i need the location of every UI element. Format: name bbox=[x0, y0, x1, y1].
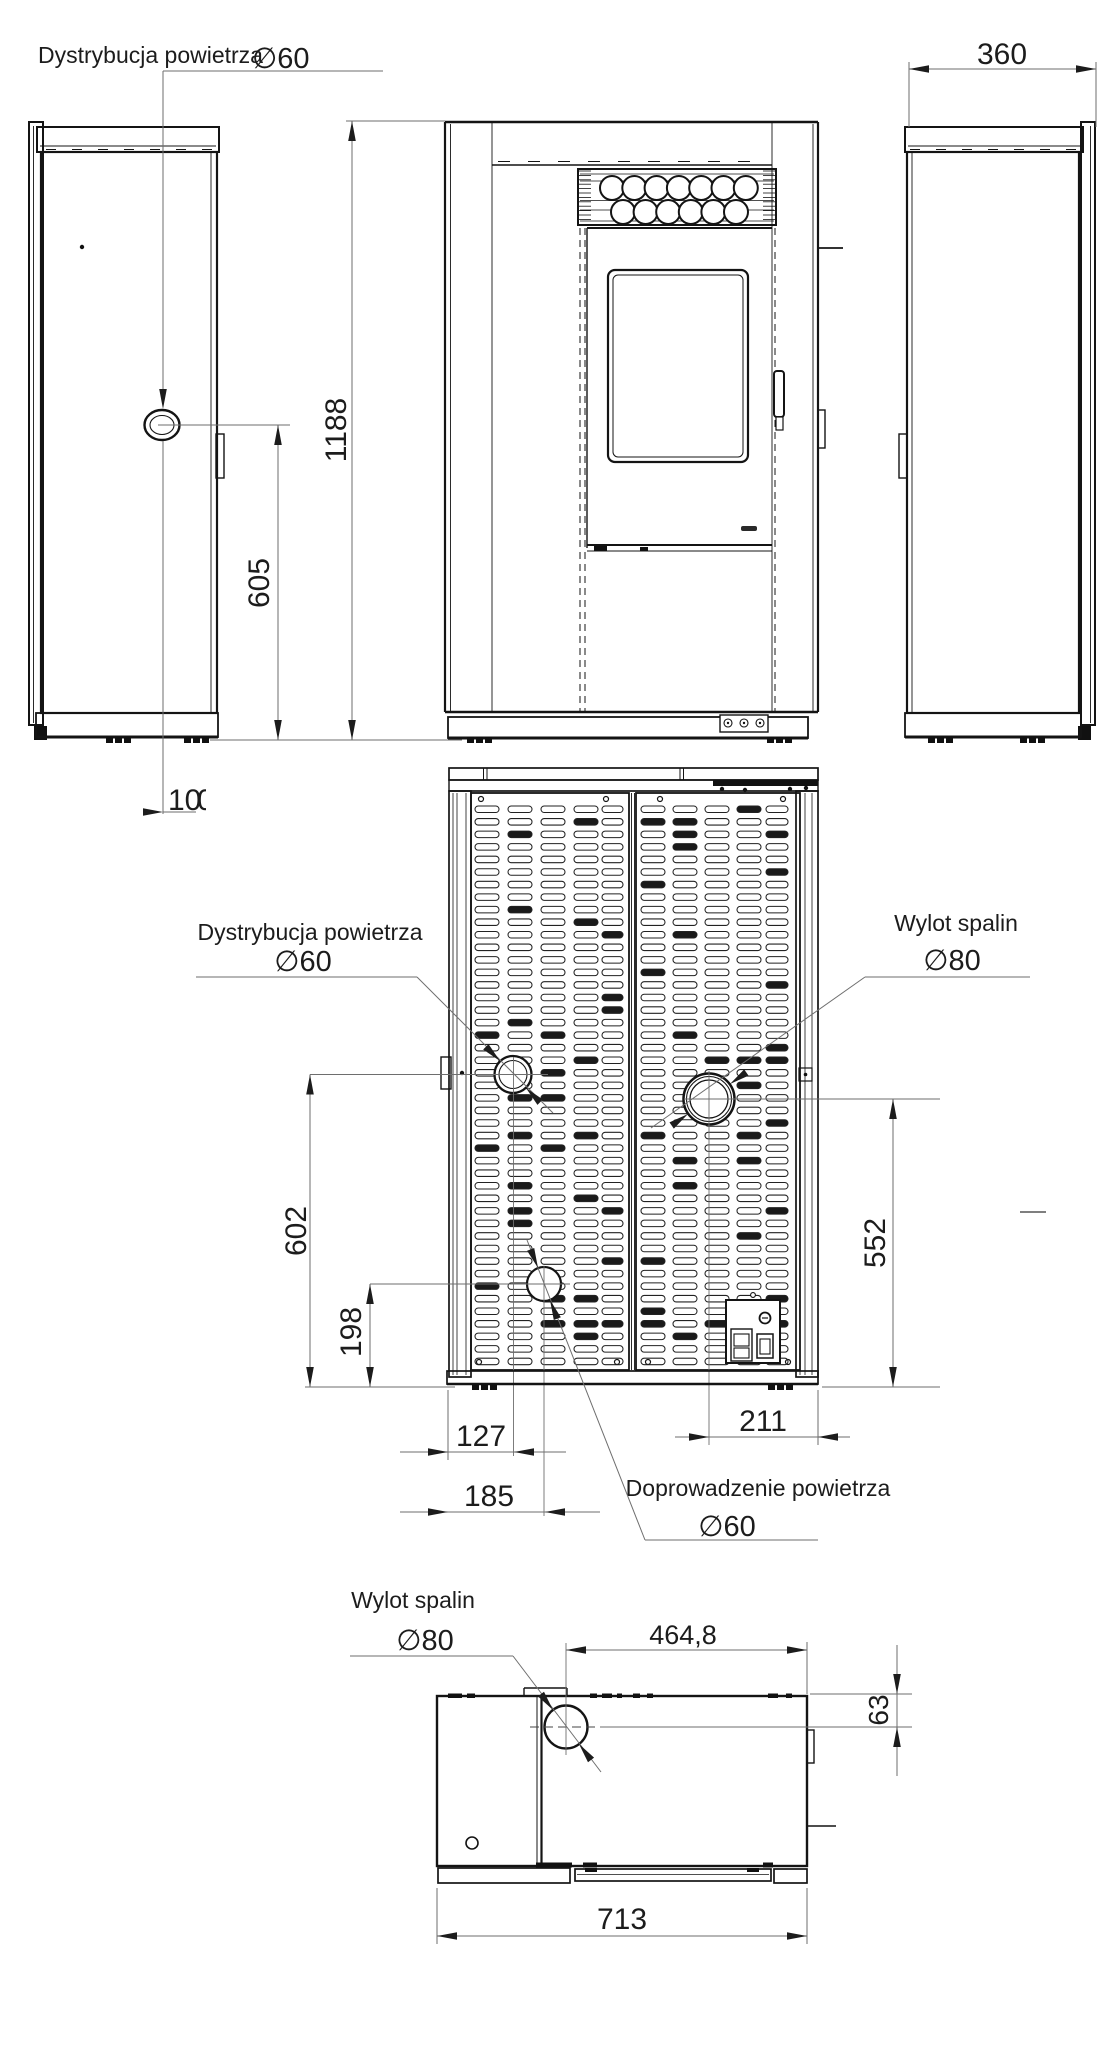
dim-flue-height: 552 bbox=[822, 1099, 940, 1387]
vent-slot bbox=[641, 1195, 665, 1202]
vent-slot bbox=[641, 1208, 665, 1215]
vent-slot bbox=[641, 1245, 665, 1252]
vent-slot bbox=[602, 1270, 623, 1277]
dimension-arrow bbox=[348, 720, 356, 740]
foot-mark bbox=[202, 737, 209, 743]
vent-slot bbox=[766, 1220, 788, 1227]
vent-slot bbox=[737, 944, 761, 951]
vent-slot bbox=[673, 1170, 697, 1177]
vent-slot bbox=[602, 1245, 623, 1252]
vent-slot bbox=[574, 1295, 598, 1302]
vent-slot bbox=[541, 1019, 565, 1026]
side-body bbox=[907, 152, 1079, 713]
vent-slot bbox=[766, 994, 788, 1001]
vent-slot bbox=[673, 944, 697, 951]
vent-slot bbox=[574, 1245, 598, 1252]
vent-slot bbox=[641, 1132, 665, 1139]
vent-slot bbox=[737, 969, 761, 976]
foot-mark bbox=[485, 737, 492, 743]
vent-slot bbox=[475, 1270, 499, 1277]
vent-slot bbox=[641, 1333, 665, 1340]
vent-slot bbox=[737, 856, 761, 863]
vent-slot bbox=[737, 831, 761, 838]
vent-slot bbox=[737, 819, 761, 826]
vent-slot bbox=[766, 1270, 788, 1277]
vent-slot bbox=[574, 994, 598, 1001]
vent-slot bbox=[602, 1208, 623, 1215]
side-view-left bbox=[29, 122, 290, 743]
vent-slot bbox=[541, 906, 565, 913]
vent-slot bbox=[541, 994, 565, 1001]
vent-slot bbox=[766, 1145, 788, 1152]
vent-slot bbox=[641, 969, 665, 976]
vent-slot bbox=[574, 969, 598, 976]
vent-slot bbox=[705, 894, 729, 901]
label-flue: Wylot spalin bbox=[351, 1587, 475, 1613]
vent-slot bbox=[641, 819, 665, 826]
vent-slot bbox=[475, 831, 499, 838]
vent-slot bbox=[475, 932, 499, 939]
vent-slot bbox=[508, 969, 532, 976]
dimension-arrow bbox=[428, 1448, 448, 1456]
vent-slot bbox=[475, 819, 499, 826]
vent-slot bbox=[673, 1220, 697, 1227]
grille-hole bbox=[622, 176, 646, 200]
dim-air-inlet-x-value: 185 bbox=[464, 1480, 514, 1513]
drawing-page: Dystrybucja powietrza∅601006051188360Dys… bbox=[0, 0, 1112, 2052]
door-latch bbox=[776, 417, 783, 430]
vent-slot bbox=[673, 982, 697, 989]
left-rail bbox=[449, 791, 471, 1377]
vent-slot bbox=[541, 831, 565, 838]
foot-mark bbox=[946, 737, 953, 743]
vent-slot bbox=[737, 1082, 761, 1089]
vent-slot bbox=[602, 1170, 623, 1177]
grille-hole bbox=[667, 176, 691, 200]
edge-tab bbox=[583, 1863, 597, 1868]
vent-slot bbox=[475, 1333, 499, 1340]
vent-slot bbox=[475, 1295, 499, 1302]
vent-slot bbox=[574, 1032, 598, 1039]
dim-overall-height-value: 1188 bbox=[320, 398, 353, 463]
vent-slot bbox=[673, 844, 697, 851]
power-inlet-box bbox=[726, 1293, 780, 1363]
stove-door bbox=[580, 228, 784, 712]
vent-slot bbox=[705, 982, 729, 989]
vent-slot bbox=[574, 1183, 598, 1190]
vent-slot bbox=[641, 1095, 665, 1102]
dim-air-inlet-height-value: 198 bbox=[335, 1307, 368, 1357]
vent-slot bbox=[475, 1032, 499, 1039]
vent-slot bbox=[737, 1107, 761, 1114]
vent-slot bbox=[766, 1170, 788, 1177]
vent-slot bbox=[602, 944, 623, 951]
dimension-arrow bbox=[366, 1284, 374, 1304]
vent-slot bbox=[673, 1208, 697, 1215]
screw bbox=[781, 797, 786, 802]
vent-slot bbox=[673, 1157, 697, 1164]
vent-slot bbox=[475, 994, 499, 1001]
vent-slot bbox=[766, 969, 788, 976]
vent-slot bbox=[673, 1183, 697, 1190]
vent-slot bbox=[641, 844, 665, 851]
vent-slot bbox=[602, 1057, 623, 1064]
vent-slot bbox=[508, 894, 532, 901]
grille-hole bbox=[712, 176, 736, 200]
vent-slot bbox=[574, 1019, 598, 1026]
label-air-distribution: Dystrybucja powietrza bbox=[198, 919, 423, 945]
vent-slot bbox=[508, 844, 532, 851]
vent-slot bbox=[673, 1321, 697, 1328]
vent-slot bbox=[574, 1358, 598, 1365]
vent-slot bbox=[574, 881, 598, 888]
vent-slot bbox=[766, 1245, 788, 1252]
vent-slot bbox=[641, 944, 665, 951]
dim-top-flue-y-value: 63 bbox=[863, 1694, 894, 1725]
vent-slot bbox=[737, 1283, 761, 1290]
dimension-arrow bbox=[366, 1367, 374, 1387]
vent-slot bbox=[475, 1220, 499, 1227]
dimension-arrow bbox=[689, 1433, 709, 1441]
vent-slot bbox=[508, 831, 532, 838]
vent-slot bbox=[766, 919, 788, 926]
vent-slot bbox=[737, 1019, 761, 1026]
dimension-arrow bbox=[274, 425, 282, 445]
vent-slot bbox=[508, 806, 532, 813]
edge-tab bbox=[647, 1694, 653, 1699]
vent-slot bbox=[641, 1321, 665, 1328]
dimension-arrow bbox=[787, 1932, 807, 1940]
top-outline bbox=[437, 1696, 807, 1866]
dim-depth-value: 360 bbox=[977, 38, 1027, 71]
dim-top-flue-x-value: 464,8 bbox=[649, 1620, 717, 1650]
vent-slot bbox=[475, 1157, 499, 1164]
vent-slot bbox=[737, 982, 761, 989]
vent-slot bbox=[541, 869, 565, 876]
label-air-distribution-diameter: ∅60 bbox=[252, 43, 310, 75]
vent-slot bbox=[574, 1208, 598, 1215]
vent-slot bbox=[508, 1095, 532, 1102]
vent-slot bbox=[602, 1082, 623, 1089]
rear-panel-edge bbox=[1081, 122, 1095, 725]
dimension-arrow bbox=[566, 1646, 586, 1654]
pellet-stove-technical-drawing: Dystrybucja powietrza∅601006051188360Dys… bbox=[0, 0, 1112, 2052]
vent-slot bbox=[475, 1208, 499, 1215]
grille-hole bbox=[611, 200, 635, 224]
vent-slot bbox=[705, 957, 729, 964]
vent-slot bbox=[602, 1044, 623, 1051]
vent-slot bbox=[602, 1032, 623, 1039]
vent-slot bbox=[541, 881, 565, 888]
vent-slot bbox=[475, 982, 499, 989]
vent-slot bbox=[673, 1283, 697, 1290]
vent-slot bbox=[574, 1283, 598, 1290]
vent-slot bbox=[705, 881, 729, 888]
dimension-arrow bbox=[274, 720, 282, 740]
vent-slot bbox=[602, 856, 623, 863]
rear-view bbox=[310, 768, 1046, 1516]
vent-slot bbox=[475, 1145, 499, 1152]
dim-top-flue-y: 63 bbox=[810, 1645, 912, 1776]
vent-slot bbox=[574, 1346, 598, 1353]
vent-slot bbox=[508, 1321, 532, 1328]
vent-slot bbox=[602, 831, 623, 838]
vent-slot bbox=[673, 1295, 697, 1302]
brand-mark bbox=[741, 526, 757, 531]
vent-slot bbox=[574, 1057, 598, 1064]
vent-slot bbox=[574, 944, 598, 951]
vent-slot bbox=[641, 1057, 665, 1064]
vent-slot bbox=[602, 969, 623, 976]
foot-mark bbox=[124, 737, 131, 743]
vent-slot bbox=[541, 1258, 565, 1265]
label-flue-diameter: ∅80 bbox=[396, 1625, 454, 1657]
vent-slot bbox=[541, 1007, 565, 1014]
vent-slot bbox=[641, 1233, 665, 1240]
label-air-distribution-diameter: ∅60 bbox=[274, 946, 332, 978]
vent-slot bbox=[508, 1258, 532, 1265]
vent-slot bbox=[475, 856, 499, 863]
vent-slot bbox=[541, 944, 565, 951]
vent-slot bbox=[574, 1145, 598, 1152]
foot-mark bbox=[106, 737, 113, 743]
vent-slot bbox=[673, 1032, 697, 1039]
vent-slot bbox=[602, 1183, 623, 1190]
foot-mark bbox=[193, 737, 200, 743]
vent-slot bbox=[475, 881, 499, 888]
vent-slot bbox=[705, 944, 729, 951]
vent-slot bbox=[541, 1120, 565, 1127]
foot-mark bbox=[476, 737, 483, 743]
foot-mark bbox=[1029, 737, 1036, 743]
vent-slot bbox=[705, 856, 729, 863]
vent-slot bbox=[541, 1082, 565, 1089]
base-plinth bbox=[774, 1869, 807, 1883]
vent-slot bbox=[673, 881, 697, 888]
screw bbox=[479, 797, 484, 802]
vent-slot bbox=[475, 1195, 499, 1202]
vent-slot bbox=[766, 806, 788, 813]
vent-slot bbox=[705, 844, 729, 851]
vent-slot bbox=[475, 1308, 499, 1315]
vent-slot bbox=[737, 1183, 761, 1190]
vent-slot bbox=[641, 1346, 665, 1353]
vent-slot bbox=[737, 1208, 761, 1215]
vent-slot bbox=[541, 1245, 565, 1252]
vent-slot bbox=[541, 919, 565, 926]
vent-slot bbox=[641, 957, 665, 964]
vent-slot bbox=[508, 1007, 532, 1014]
vent-slot bbox=[673, 1145, 697, 1152]
vent-slot bbox=[641, 1220, 665, 1227]
foot-mark bbox=[786, 1384, 793, 1390]
rect bbox=[594, 546, 607, 551]
vent-slot bbox=[737, 1120, 761, 1127]
vent-slot bbox=[641, 982, 665, 989]
vent-slot bbox=[508, 932, 532, 939]
foot-mark bbox=[115, 737, 122, 743]
vent-slot bbox=[766, 1283, 788, 1290]
vent-slot bbox=[673, 1358, 697, 1365]
vent-slot bbox=[541, 1233, 565, 1240]
vent-slot bbox=[574, 1270, 598, 1277]
dimension-arrow bbox=[159, 389, 167, 409]
vent-slot bbox=[574, 844, 598, 851]
vent-slot bbox=[737, 881, 761, 888]
vent-slot bbox=[602, 957, 623, 964]
base-plinth bbox=[575, 1869, 771, 1881]
vent-slot bbox=[475, 1245, 499, 1252]
dimension-arrow bbox=[889, 1367, 897, 1387]
vent-slot bbox=[475, 957, 499, 964]
vent-slot bbox=[602, 1295, 623, 1302]
vent-slot bbox=[541, 1095, 565, 1102]
vent-slot bbox=[673, 894, 697, 901]
label-flue-diameter: ∅80 bbox=[923, 945, 981, 977]
grille-hole bbox=[679, 200, 703, 224]
label-air-supply: Doprowadzenie powietrza bbox=[626, 1475, 891, 1501]
grille-hole bbox=[734, 176, 758, 200]
foot-mark bbox=[785, 737, 792, 743]
vent-slot bbox=[641, 994, 665, 1001]
foot-mark bbox=[467, 737, 474, 743]
vent-slot bbox=[541, 844, 565, 851]
vent-slot bbox=[705, 1044, 729, 1051]
rect bbox=[640, 547, 648, 551]
vent-slot bbox=[574, 1195, 598, 1202]
vent-slot bbox=[602, 1019, 623, 1026]
dimension-arrow bbox=[818, 1433, 838, 1441]
vent-slot bbox=[602, 994, 623, 1001]
vent-slot bbox=[766, 1070, 788, 1077]
vent-slot bbox=[574, 1120, 598, 1127]
vent-slot bbox=[541, 1321, 565, 1328]
vent-slot bbox=[766, 856, 788, 863]
vent-slot bbox=[766, 1107, 788, 1114]
edge-tab bbox=[467, 1694, 475, 1699]
vent-slot bbox=[673, 1044, 697, 1051]
vent-slot bbox=[766, 831, 788, 838]
edge-tab bbox=[590, 1694, 597, 1699]
dimension-arrow bbox=[909, 65, 929, 73]
top-cap bbox=[449, 768, 818, 780]
vent-slot bbox=[766, 819, 788, 826]
vent-slot bbox=[737, 1233, 761, 1240]
vent-slot bbox=[602, 1346, 623, 1353]
vent-slot bbox=[673, 856, 697, 863]
vent-slot bbox=[541, 969, 565, 976]
grille-hole bbox=[701, 200, 725, 224]
vent-slot bbox=[673, 1195, 697, 1202]
vent-slot bbox=[602, 1095, 623, 1102]
vent-slot bbox=[475, 844, 499, 851]
dim-air-inlet-x: 185 bbox=[400, 1480, 600, 1516]
vent-slot bbox=[602, 1333, 623, 1340]
vent-slot bbox=[705, 1007, 729, 1014]
vent-slot bbox=[574, 1308, 598, 1315]
circle bbox=[727, 722, 729, 724]
vent-slot bbox=[574, 1333, 598, 1340]
vent-slot bbox=[574, 869, 598, 876]
vent-slot bbox=[574, 831, 598, 838]
vent-slot bbox=[574, 957, 598, 964]
dimension-arrow bbox=[893, 1674, 901, 1694]
vent-slot bbox=[508, 1346, 532, 1353]
vent-slot bbox=[475, 1233, 499, 1240]
vent-slot bbox=[508, 1157, 532, 1164]
vent-slot bbox=[574, 806, 598, 813]
vent-slot bbox=[602, 1283, 623, 1290]
vent-slot bbox=[541, 1220, 565, 1227]
vent-slot bbox=[508, 1170, 532, 1177]
vent-slot bbox=[508, 1120, 532, 1127]
vent-slot bbox=[574, 894, 598, 901]
grille-hole bbox=[656, 200, 680, 224]
line bbox=[527, 1240, 645, 1540]
vent-slot bbox=[641, 1019, 665, 1026]
vent-slot bbox=[673, 1057, 697, 1064]
vent-slot bbox=[508, 982, 532, 989]
vent-slot bbox=[673, 919, 697, 926]
vent-slot bbox=[737, 1258, 761, 1265]
door-window bbox=[608, 270, 748, 462]
vent-slot bbox=[705, 919, 729, 926]
vent-slot bbox=[737, 844, 761, 851]
vent-slot bbox=[602, 1321, 623, 1328]
vent-slot bbox=[737, 1132, 761, 1139]
vent-slot bbox=[475, 869, 499, 876]
vent-slot bbox=[737, 1044, 761, 1051]
vent-slot bbox=[475, 1170, 499, 1177]
vent-slot bbox=[508, 1358, 532, 1365]
vent-slot bbox=[475, 1183, 499, 1190]
vent-slot bbox=[541, 894, 565, 901]
screw bbox=[646, 1360, 651, 1365]
vent-slot bbox=[737, 1245, 761, 1252]
vent-slot bbox=[737, 1195, 761, 1202]
vent-slot bbox=[766, 1120, 788, 1127]
vent-slot bbox=[705, 1057, 729, 1064]
vent-slot bbox=[602, 869, 623, 876]
line bbox=[651, 977, 865, 1128]
screw bbox=[604, 797, 609, 802]
foot-mark bbox=[1038, 737, 1045, 743]
vent-slot bbox=[602, 919, 623, 926]
edge-tab bbox=[543, 1863, 572, 1868]
vent-slot bbox=[475, 906, 499, 913]
vent-slot bbox=[602, 1070, 623, 1077]
foot-mark bbox=[490, 1384, 497, 1390]
vent-slot bbox=[641, 1044, 665, 1051]
vent-slot bbox=[766, 1044, 788, 1051]
vent-slot bbox=[541, 1044, 565, 1051]
vent-slot bbox=[541, 1132, 565, 1139]
vent-slot bbox=[508, 1220, 532, 1227]
vent-slot bbox=[641, 919, 665, 926]
vent-slot bbox=[508, 1333, 532, 1340]
vent-slot bbox=[641, 1258, 665, 1265]
vent-slot bbox=[641, 1358, 665, 1365]
dim-flue-x: 211 bbox=[675, 1390, 850, 1445]
edge-tab bbox=[602, 1694, 612, 1699]
vent-slot bbox=[705, 1019, 729, 1026]
vent-slot bbox=[602, 1120, 623, 1127]
vent-slot bbox=[508, 1132, 532, 1139]
dimension-arrow bbox=[1076, 65, 1096, 73]
vent-slot bbox=[475, 1007, 499, 1014]
vent-slot bbox=[508, 881, 532, 888]
vent-slot bbox=[766, 1258, 788, 1265]
